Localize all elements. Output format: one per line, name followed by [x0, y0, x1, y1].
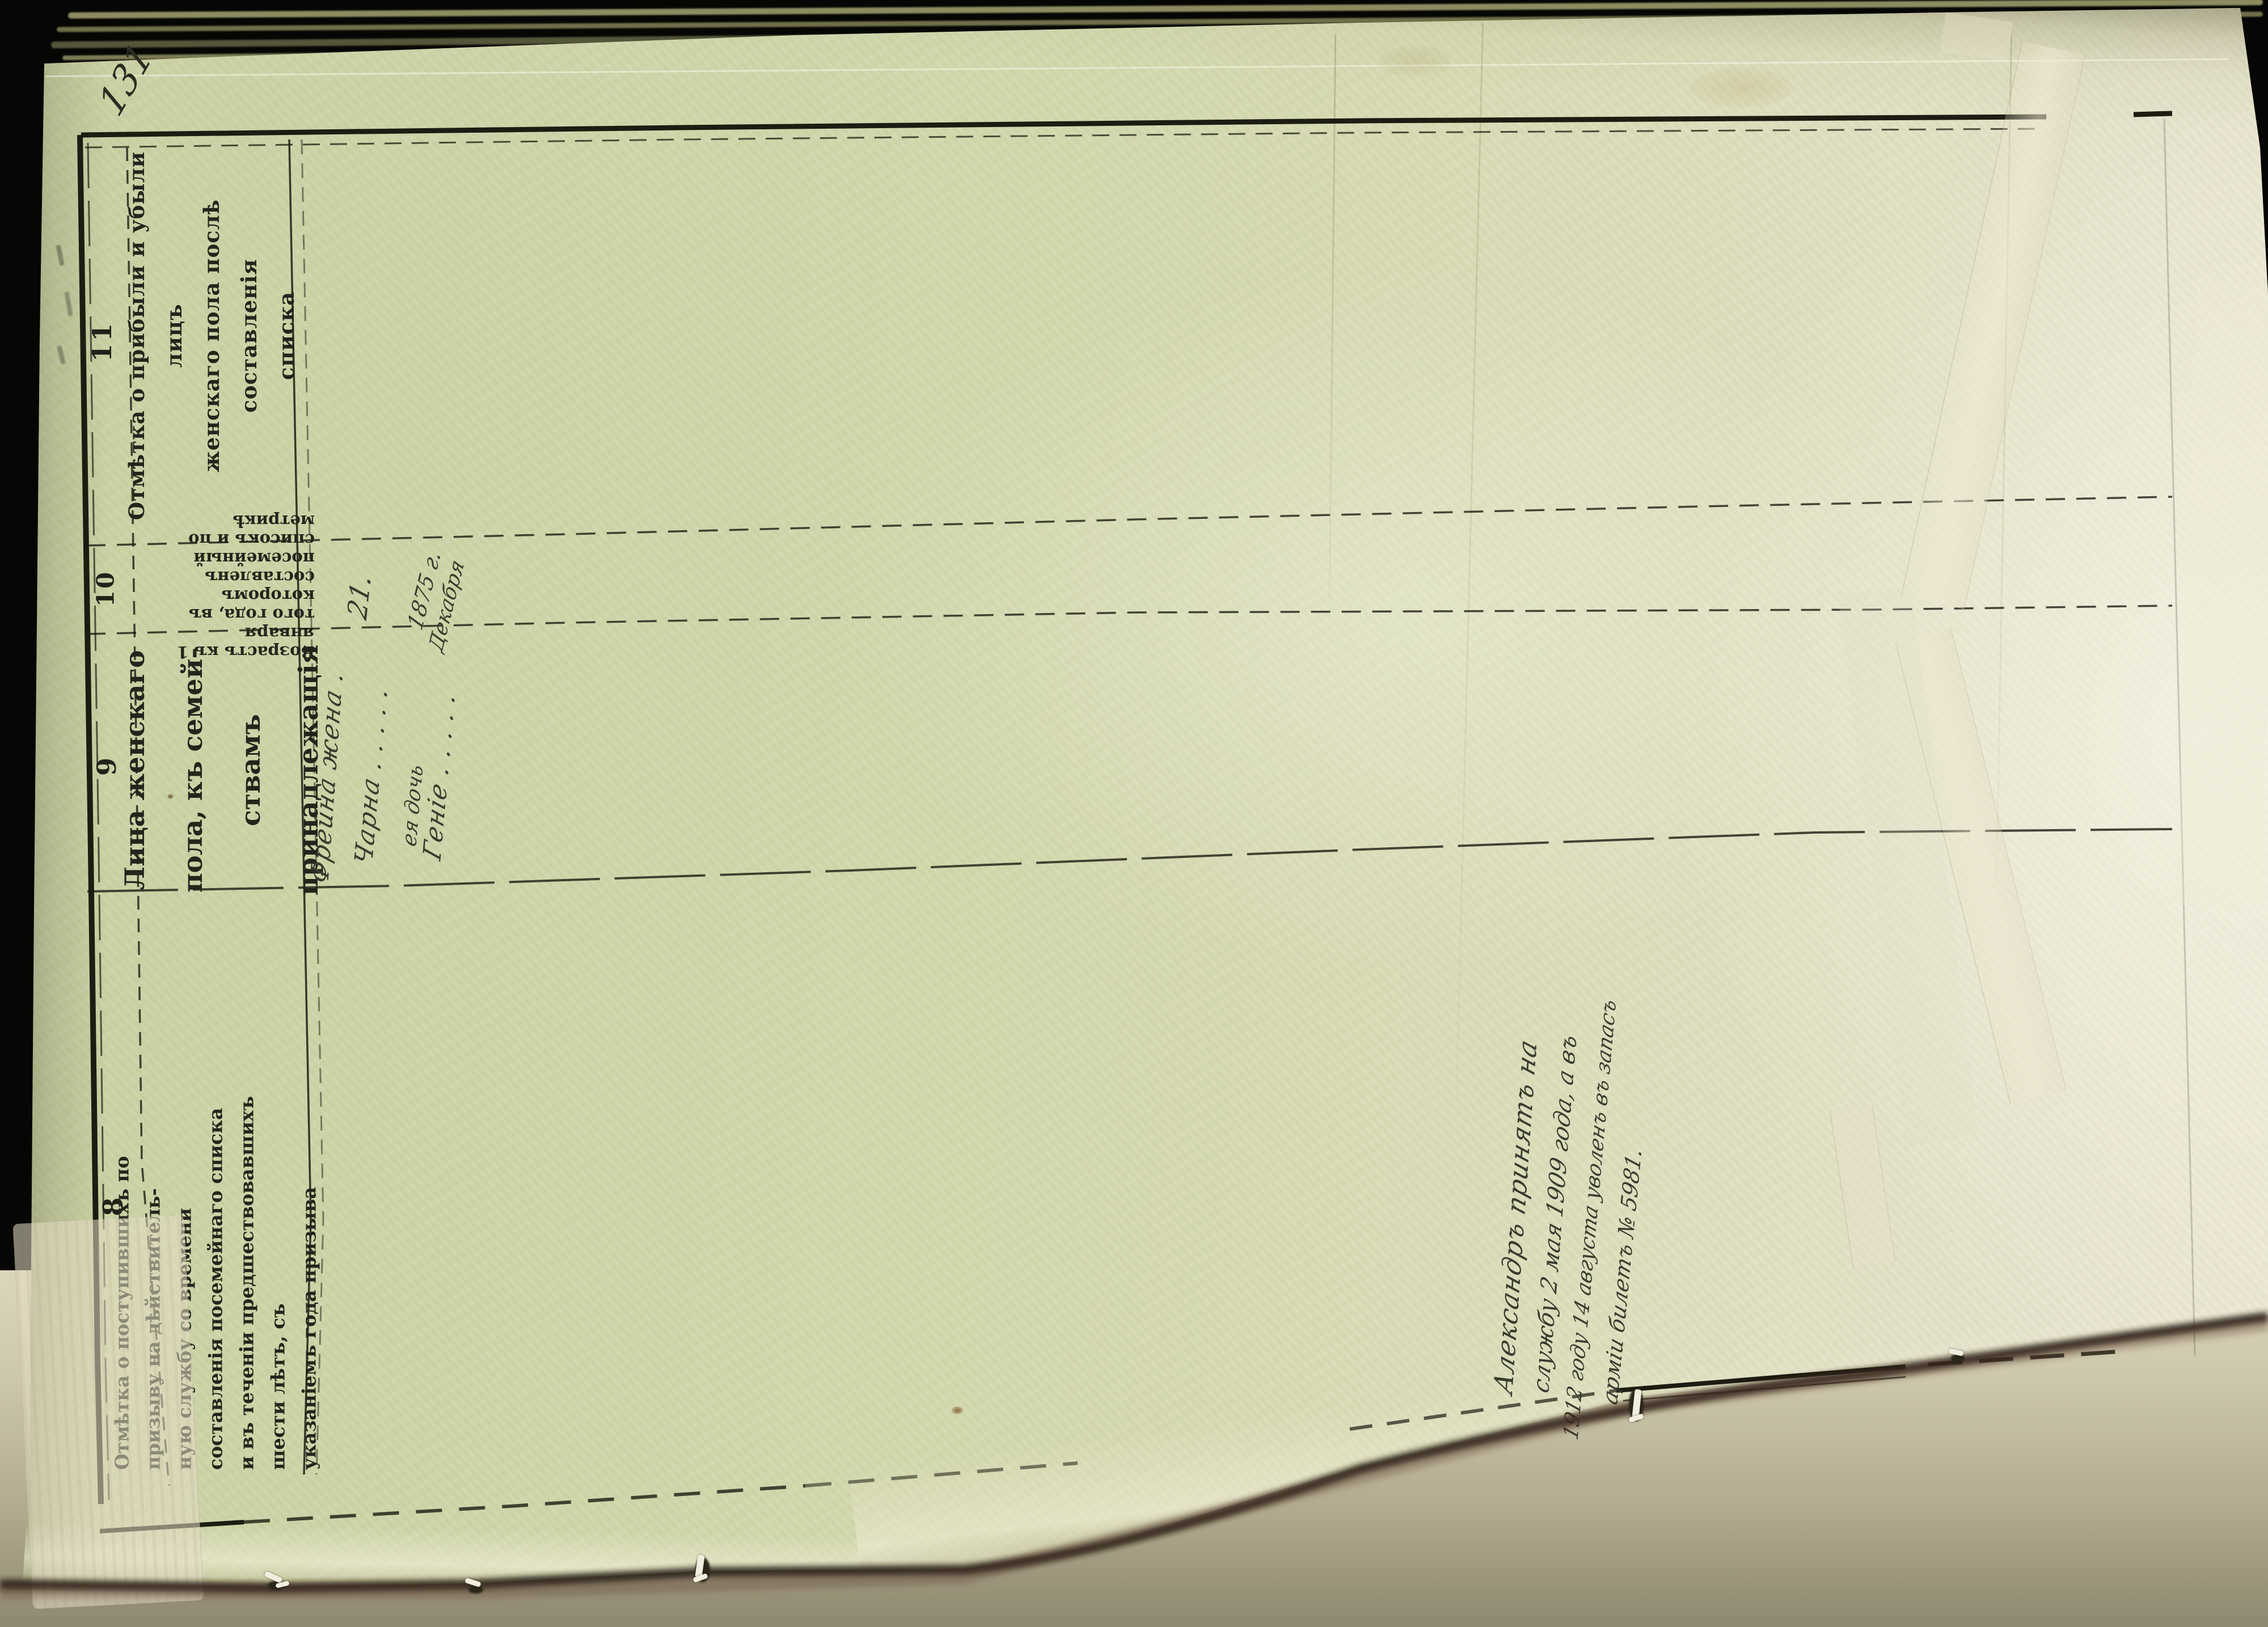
scanned-book-photo: 11 10 9 8 Отмѣтка о прибыли и убыли лицъ…: [0, 0, 2268, 1627]
binding-crease: [0, 0, 2268, 1627]
